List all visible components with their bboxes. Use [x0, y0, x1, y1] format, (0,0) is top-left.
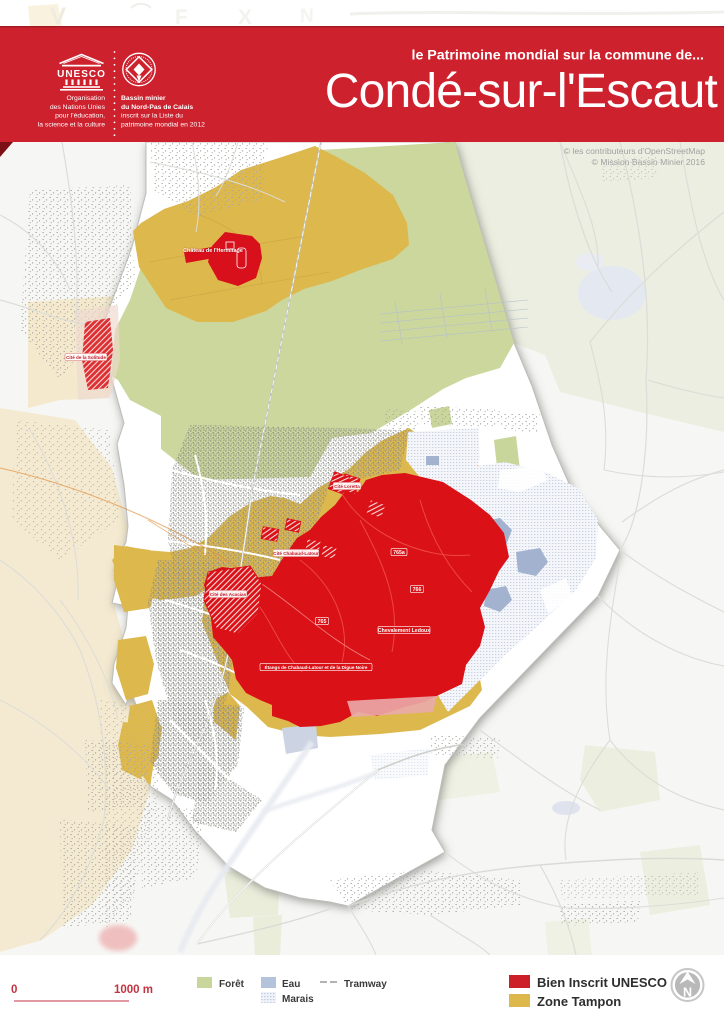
svg-text:du Nord-Pas de Calais: du Nord-Pas de Calais — [121, 104, 193, 111]
svg-text:766: 766 — [413, 587, 422, 593]
svg-text:UNESCO: UNESCO — [57, 69, 106, 80]
svg-text:X: X — [238, 6, 252, 29]
svg-text:Forêt: Forêt — [219, 979, 245, 990]
svg-text:Bien Inscrit UNESCO: Bien Inscrit UNESCO — [537, 975, 667, 990]
svg-text:765a: 765a — [393, 550, 405, 556]
svg-text:N: N — [300, 6, 314, 27]
svg-text:© Mission Bassin Minier 2016: © Mission Bassin Minier 2016 — [592, 157, 706, 167]
svg-text:Zone Tampon: Zone Tampon — [537, 994, 621, 1009]
svg-text:F: F — [175, 6, 188, 29]
svg-text:Cité Chabaud-Latour: Cité Chabaud-Latour — [273, 551, 319, 556]
svg-text:Cité des Acacias: Cité des Acacias — [210, 592, 247, 597]
svg-text:des Nations Unies: des Nations Unies — [50, 104, 106, 111]
svg-text:© les contributeurs d'OpenStre: © les contributeurs d'OpenStreetMap — [564, 146, 705, 156]
svg-text:765: 765 — [318, 619, 327, 625]
svg-text:Chevalement Ledoux: Chevalement Ledoux — [378, 628, 430, 634]
svg-text:N: N — [683, 986, 692, 1000]
svg-text:Cité de la Solitude: Cité de la Solitude — [66, 355, 106, 360]
svg-text:Château de l'Hermitage: Château de l'Hermitage — [183, 248, 243, 254]
svg-text:Condé-sur-l'Escaut: Condé-sur-l'Escaut — [325, 65, 718, 118]
svg-text:V: V — [50, 3, 66, 30]
svg-text:le Patrimoine mondial sur la c: le Patrimoine mondial sur la commune de.… — [412, 48, 705, 64]
svg-text:0: 0 — [11, 984, 17, 996]
svg-text:Organisation: Organisation — [66, 95, 105, 102]
svg-text:pour l’éducation,: pour l’éducation, — [55, 113, 105, 120]
svg-text:Marais: Marais — [282, 994, 314, 1005]
svg-text:Eau: Eau — [282, 979, 300, 990]
svg-text:la science et la culture: la science et la culture — [38, 121, 105, 128]
svg-text:Bassin minier: Bassin minier — [121, 95, 166, 102]
svg-text:1000 m: 1000 m — [114, 984, 153, 996]
svg-text:⌒: ⌒ — [130, 2, 152, 27]
svg-text:patrimoine mondial en 2012: patrimoine mondial en 2012 — [121, 121, 205, 128]
svg-text:inscrit sur la Liste du: inscrit sur la Liste du — [121, 113, 183, 120]
svg-text:Tramway: Tramway — [344, 979, 387, 990]
svg-text:Étangs de Chabaud-Latour et de: Étangs de Chabaud-Latour et de la Digue … — [265, 663, 368, 670]
svg-text:Cité Loretta: Cité Loretta — [334, 484, 360, 489]
